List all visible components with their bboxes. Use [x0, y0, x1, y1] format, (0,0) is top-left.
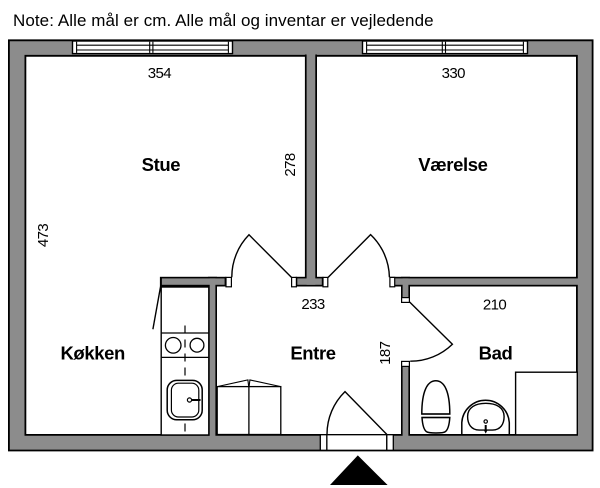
- svg-text:354: 354: [148, 65, 171, 82]
- svg-text:473: 473: [35, 224, 52, 247]
- svg-text:Værelse: Værelse: [418, 154, 487, 175]
- svg-text:Entre: Entre: [290, 343, 335, 364]
- svg-text:187: 187: [377, 341, 394, 364]
- svg-text:Bad: Bad: [479, 343, 513, 364]
- svg-text:233: 233: [301, 296, 324, 313]
- svg-text:210: 210: [483, 297, 506, 314]
- svg-text:Note: Alle mål er cm. Alle mål: Note: Alle mål er cm. Alle mål og invent…: [13, 11, 434, 30]
- svg-text:Stue: Stue: [142, 154, 181, 175]
- svg-text:278: 278: [282, 153, 299, 176]
- svg-text:330: 330: [442, 65, 465, 82]
- svg-text:Køkken: Køkken: [60, 343, 125, 364]
